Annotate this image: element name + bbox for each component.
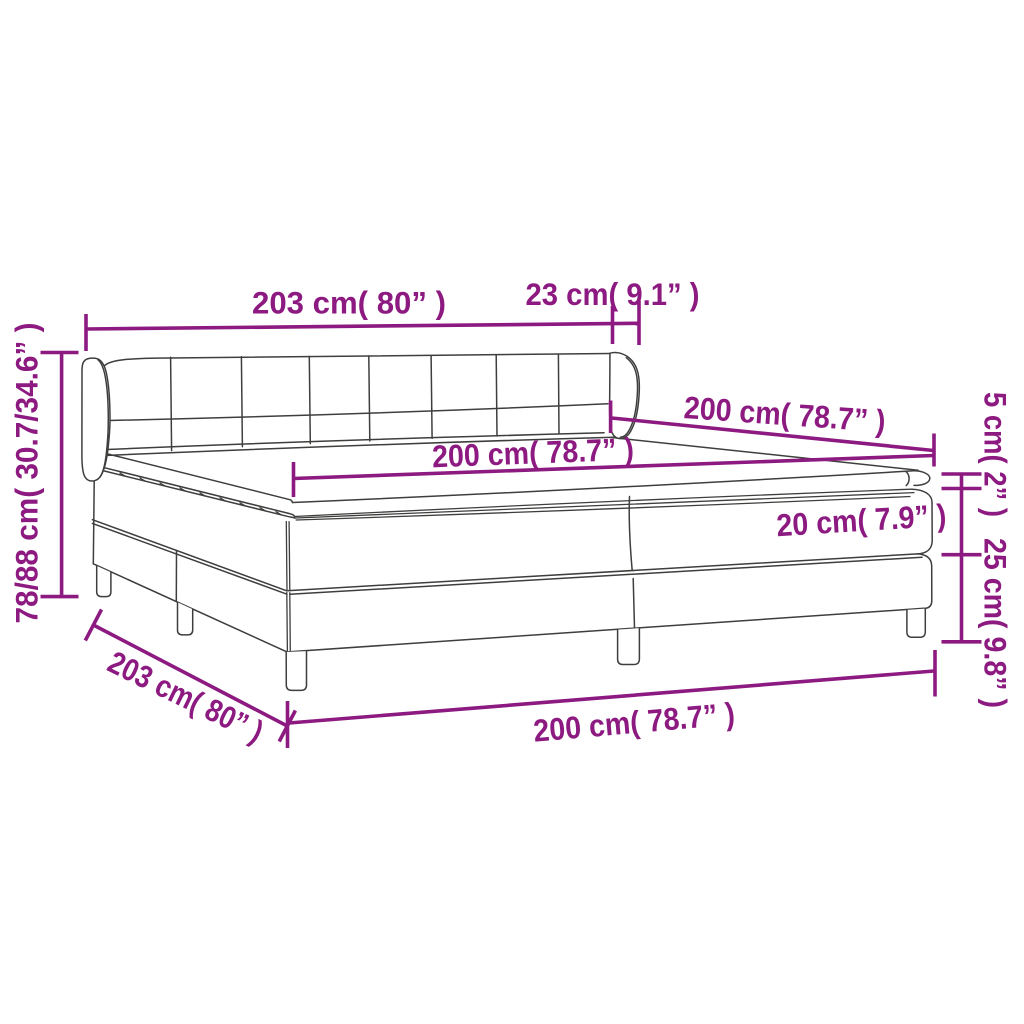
svg-text:5 cm( 2” ): 5 cm( 2” ) bbox=[978, 392, 1014, 517]
svg-text:203 cm( 80” ): 203 cm( 80” ) bbox=[252, 285, 446, 321]
svg-text:78/88 cm( 30.7/34.6” ): 78/88 cm( 30.7/34.6” ) bbox=[9, 323, 45, 624]
svg-text:25 cm( 9.8” ): 25 cm( 9.8” ) bbox=[978, 538, 1014, 708]
svg-text:23 cm( 9.1” ): 23 cm( 9.1” ) bbox=[526, 276, 700, 312]
